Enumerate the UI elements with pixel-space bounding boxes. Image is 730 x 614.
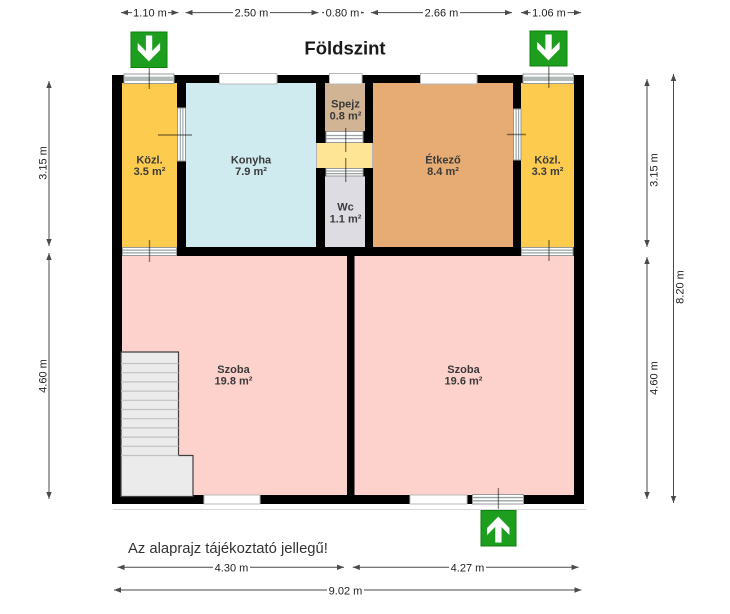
svg-text:1.1 m²: 1.1 m² — [330, 214, 362, 226]
svg-text:Spejz: Spejz — [331, 99, 360, 111]
svg-text:4.60 m: 4.60 m — [38, 359, 50, 393]
svg-text:2.50 m: 2.50 m — [235, 8, 269, 20]
svg-text:8.4 m²: 8.4 m² — [427, 166, 459, 178]
svg-text:19.8 m²: 19.8 m² — [215, 376, 253, 388]
svg-text:Étkező: Étkező — [425, 154, 461, 167]
svg-text:4.27 m: 4.27 m — [451, 562, 485, 574]
svg-text:3.15 m: 3.15 m — [649, 153, 661, 187]
svg-text:Földszint: Földszint — [304, 38, 385, 59]
svg-text:1.06 m: 1.06 m — [532, 8, 566, 20]
svg-text:Szoba: Szoba — [447, 364, 480, 376]
svg-text:Wc: Wc — [337, 202, 354, 214]
svg-text:Az alaprajz tájékoztató jelleg: Az alaprajz tájékoztató jellegű! — [128, 541, 328, 557]
svg-text:8.20 m: 8.20 m — [675, 270, 687, 304]
svg-text:3.3 m²: 3.3 m² — [532, 166, 564, 178]
svg-text:0.80 m: 0.80 m — [326, 8, 360, 20]
svg-text:19.6 m²: 19.6 m² — [445, 376, 483, 388]
svg-text:Szoba: Szoba — [217, 364, 250, 376]
svg-text:Konyha: Konyha — [231, 155, 272, 167]
svg-text:3.5 m²: 3.5 m² — [134, 166, 166, 178]
svg-text:3.15 m: 3.15 m — [38, 146, 50, 180]
svg-text:7.9 m²: 7.9 m² — [235, 166, 267, 178]
svg-text:0.8 m²: 0.8 m² — [330, 111, 362, 123]
svg-text:Közl.: Közl. — [136, 155, 162, 167]
svg-text:1.10 m: 1.10 m — [133, 8, 167, 20]
svg-text:4.30 m: 4.30 m — [215, 562, 249, 574]
svg-text:9.02 m: 9.02 m — [329, 585, 363, 597]
svg-text:4.60 m: 4.60 m — [649, 361, 661, 395]
svg-text:2.66 m: 2.66 m — [425, 8, 459, 20]
svg-text:Közl.: Közl. — [534, 155, 560, 167]
